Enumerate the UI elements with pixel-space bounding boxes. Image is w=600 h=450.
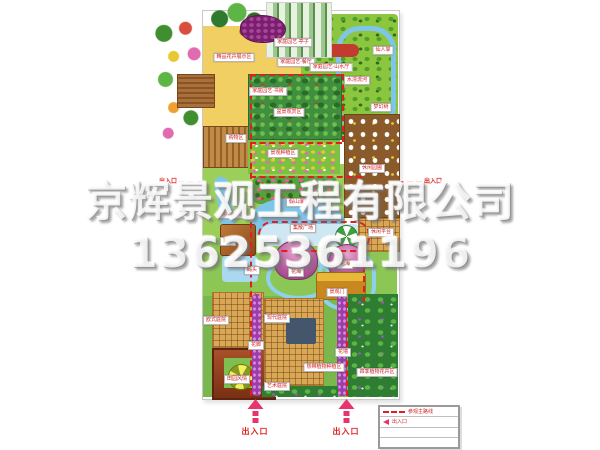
zone-label: 热带植物种植区	[303, 363, 344, 372]
zone-label: 景观种植区	[267, 149, 298, 158]
zone-label: 水漂流河	[344, 76, 370, 85]
outdoor-kitchen	[286, 318, 316, 344]
pergola-photo	[177, 74, 215, 108]
zone-label: 码头	[244, 266, 260, 275]
zone-label: 家庭园艺·书房	[249, 87, 287, 96]
tour-route-segment	[250, 142, 342, 144]
legend-row-empty-2	[380, 438, 458, 447]
legend: 参观主路线 出入口	[378, 405, 460, 449]
tour-route-segment	[178, 181, 203, 183]
legend-row-empty-1	[380, 428, 458, 438]
tour-route-segment	[363, 246, 365, 302]
zone-label: 四季植物花卉区	[356, 368, 397, 377]
zone-label: 盆景观赏区	[273, 108, 304, 117]
entrance-label: 出入口	[333, 426, 360, 437]
zone-label: 集散广场	[290, 224, 316, 233]
zone-label: 现代庭院	[264, 314, 290, 323]
entrance-arrow-icon	[383, 419, 389, 425]
route-line-icon	[383, 411, 405, 413]
zone-label: 假山瀑布	[286, 198, 312, 207]
legend-row-entrance: 出入口	[380, 417, 458, 427]
arrow-stem	[252, 418, 258, 423]
zone-label: 欧式庭院	[203, 316, 229, 325]
up-arrow-icon	[247, 399, 263, 409]
arrow-stem	[343, 418, 349, 423]
zone-label: 仙人掌	[372, 46, 393, 55]
zone-label: 景观门	[326, 288, 347, 297]
entrance-arrow-group: 出入口	[242, 399, 269, 437]
zone-label: 休闲园圃	[359, 164, 385, 173]
zone-label: 精品花卉展示区	[213, 53, 254, 62]
shelf-photo	[203, 126, 251, 168]
zone-label: 家庭园艺·亭子	[274, 38, 312, 47]
entrance-arrow-group: 出入口	[333, 399, 360, 437]
tour-route-segment	[250, 176, 362, 178]
zone-label: 休闲平台	[368, 228, 394, 237]
zone-label: 家庭园艺·山水厅	[310, 63, 353, 72]
zone-label: 花海	[337, 260, 353, 269]
zone-label: 茶室	[220, 237, 236, 246]
side-entrance-label: 出入口	[159, 176, 177, 185]
zone-label: 梦幻树	[370, 103, 391, 112]
arrow-stem	[252, 411, 258, 416]
zone-label: 田园风情	[224, 375, 250, 384]
zone-label: 艺术庭院	[264, 382, 290, 391]
zone-label: 花墙	[335, 348, 351, 357]
side-entrance-label: 出入口	[424, 176, 442, 185]
zone-label: 缓水戏流	[218, 210, 244, 219]
legend-route-label: 参观主路线	[408, 408, 433, 415]
garden-master-plan: 京辉景观工程有限公司 13625361196 参观主路线 出入口 精品花卉展示区…	[0, 0, 600, 450]
legend-entrance-label: 出入口	[392, 418, 407, 425]
forest-southeast	[348, 294, 398, 397]
up-arrow-icon	[338, 399, 354, 409]
zone-label: 花海	[288, 268, 304, 277]
display-lawn	[248, 74, 342, 140]
entrance-label: 出入口	[242, 426, 269, 437]
arrow-stem	[343, 411, 349, 416]
tour-route-segment	[398, 181, 422, 183]
zone-label: 购物区	[225, 134, 246, 143]
zone-label: 花廊	[248, 341, 264, 350]
tour-route-segment	[250, 74, 342, 76]
legend-row-route: 参观主路线	[380, 407, 458, 417]
